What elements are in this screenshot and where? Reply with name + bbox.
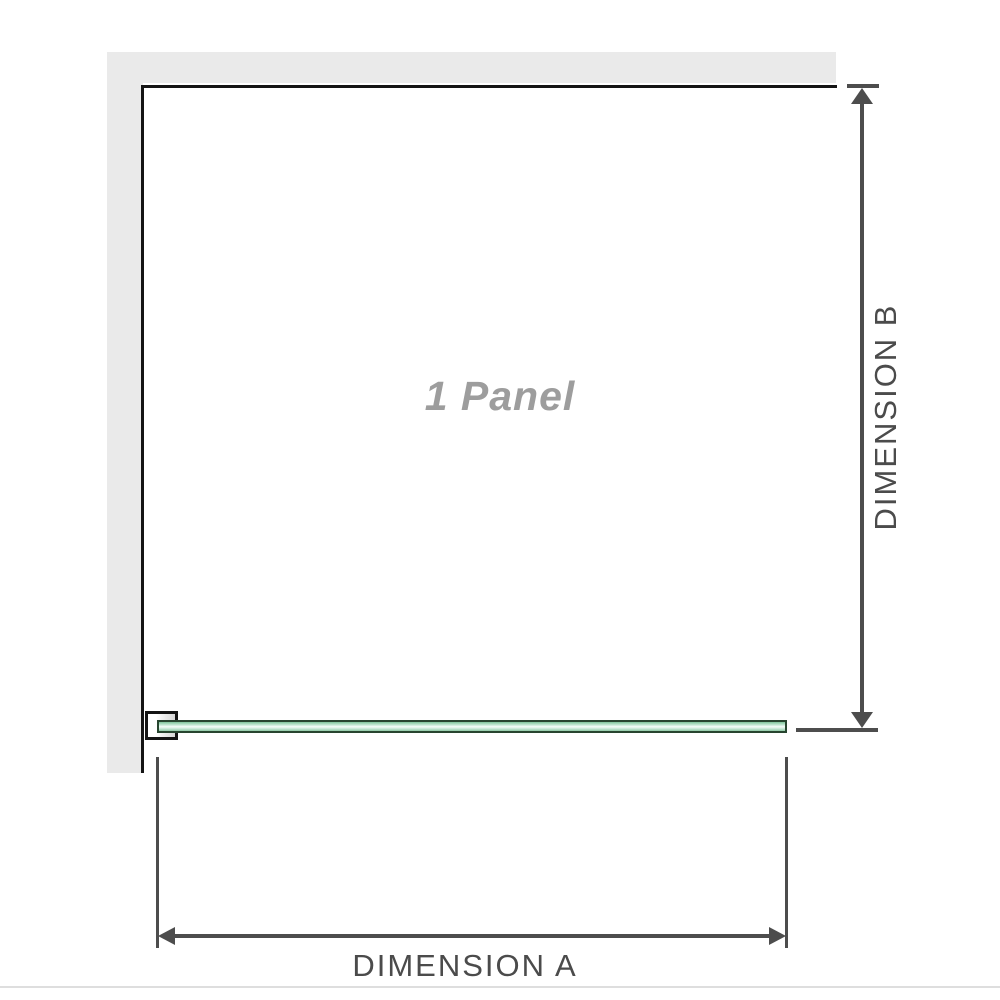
arrow-left-icon	[158, 927, 175, 945]
page-bottom-divider	[0, 986, 1000, 988]
glass-panel-bar	[157, 720, 787, 733]
panel-count-label: 1 Panel	[350, 370, 650, 422]
panel-outline-top-edge	[142, 85, 837, 88]
arrow-down-icon	[851, 712, 873, 728]
panel-outline-left-edge	[141, 85, 144, 773]
dimension-a-line	[170, 934, 775, 938]
dimension-a-left-extension-line	[156, 757, 159, 948]
dimension-a-right-extension-line	[785, 757, 788, 948]
arrow-up-icon	[851, 88, 873, 104]
dimension-b-bottom-tick	[796, 728, 878, 732]
dimension-a-label: DIMENSION A	[265, 948, 665, 984]
dimension-b-label: DIMENSION B	[867, 217, 905, 617]
shower-panel-diagram: 1 Panel DIMENSION B DIMENSION A	[0, 0, 1000, 1000]
arrow-right-icon	[769, 927, 786, 945]
dimension-b-line	[860, 98, 864, 716]
wall-left-segment	[107, 52, 143, 773]
wall-top-segment	[107, 52, 836, 83]
